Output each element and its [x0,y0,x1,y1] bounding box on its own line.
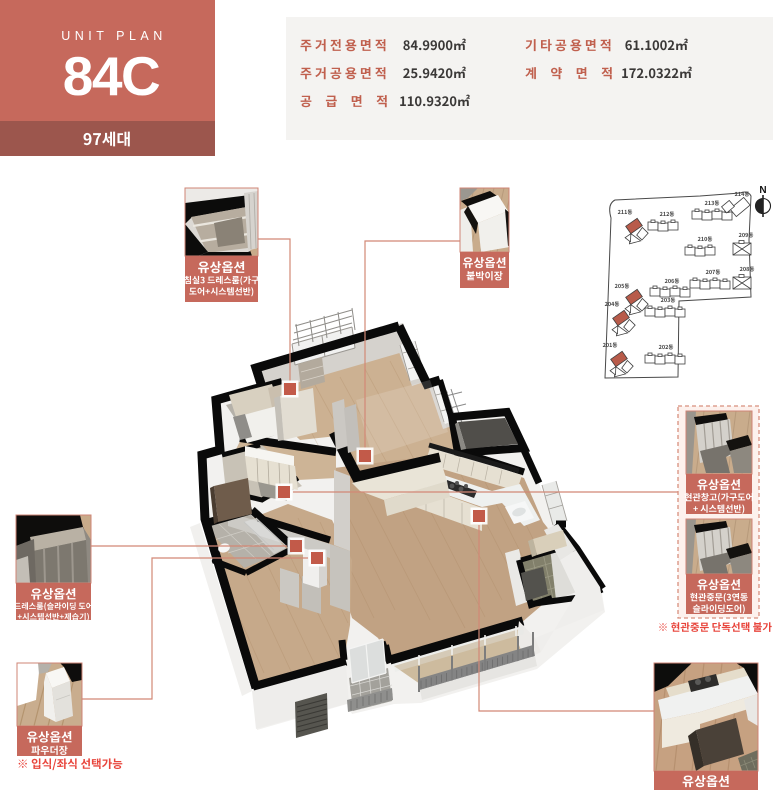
svg-text:UNIT PLAN: UNIT PLAN [61,29,167,43]
svg-text:84C: 84C [63,45,160,107]
svg-text:N: N [759,185,766,196]
